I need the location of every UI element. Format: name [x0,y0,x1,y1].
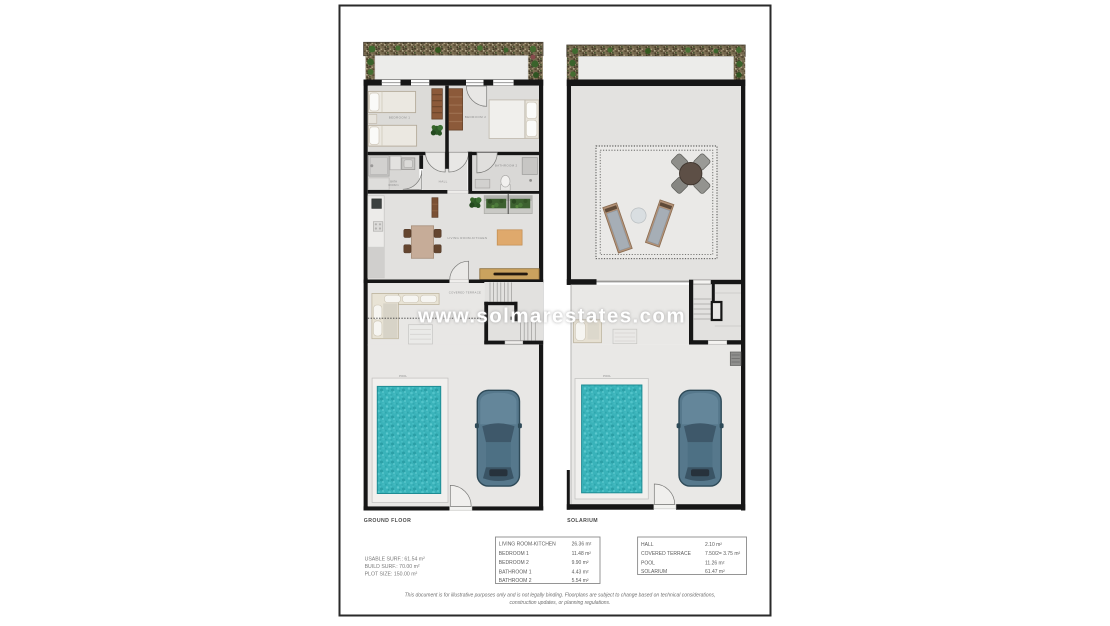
svg-text:BEDROOM 2: BEDROOM 2 [465,115,487,119]
svg-text:GROUND FLOOR: GROUND FLOOR [364,518,411,524]
svg-text:USABLE SURF.: 61.54 m²: USABLE SURF.: 61.54 m² [365,556,426,562]
svg-text:SOLARIUM: SOLARIUM [641,569,667,575]
svg-text:9.90 m²: 9.90 m² [572,560,589,566]
svg-text:www.solmarestates.com: www.solmarestates.com [417,305,686,328]
svg-text:BEDROOM 1: BEDROOM 1 [499,551,529,557]
svg-text:POOL: POOL [641,561,655,567]
svg-text:HALL: HALL [641,542,654,548]
svg-text:COVERED TERRACE: COVERED TERRACE [449,291,481,295]
svg-text:5.54 m²: 5.54 m² [572,578,589,584]
svg-text:2.10 m²: 2.10 m² [705,542,722,548]
svg-text:11.48 m²: 11.48 m² [572,551,592,557]
svg-text:BEDROOM 1: BEDROOM 1 [389,116,411,120]
svg-text:4.43 m²: 4.43 m² [572,570,589,576]
svg-text:7.50/2= 3.75 m²: 7.50/2= 3.75 m² [705,551,740,557]
svg-text:BATHROOM 2: BATHROOM 2 [499,578,532,584]
svg-text:26.36 m²: 26.36 m² [572,542,592,548]
svg-text:PLOT SIZE: 150.00 m²: PLOT SIZE: 150.00 m² [365,571,418,577]
svg-text:SOLARIUM: SOLARIUM [567,518,598,524]
svg-text:11.26 m²: 11.26 m² [705,561,725,567]
svg-text:LIVING ROOM-KITCHEN: LIVING ROOM-KITCHEN [447,236,487,240]
svg-text:ROOM 1: ROOM 1 [388,183,399,187]
svg-text:BATHROOM 2: BATHROOM 2 [495,163,518,167]
svg-text:COVERED TERRACE: COVERED TERRACE [641,551,692,557]
svg-text:HALL: HALL [439,179,448,183]
svg-text:BEDROOM 2: BEDROOM 2 [499,560,529,566]
svg-text:This document is for illustrat: This document is for illustrative purpos… [405,593,716,599]
svg-text:LIVING ROOM-KITCHEN: LIVING ROOM-KITCHEN [499,542,556,548]
svg-text:61.47 m²: 61.47 m² [705,569,725,575]
svg-text:POOL: POOL [399,374,407,378]
svg-text:BUILD SURF.: 70.00 m²: BUILD SURF.: 70.00 m² [365,564,420,570]
svg-text:BATHROOM 1: BATHROOM 1 [499,570,532,576]
svg-text:POOL: POOL [603,374,611,378]
svg-text:construction updates, or plann: construction updates, or planning regula… [510,600,611,606]
